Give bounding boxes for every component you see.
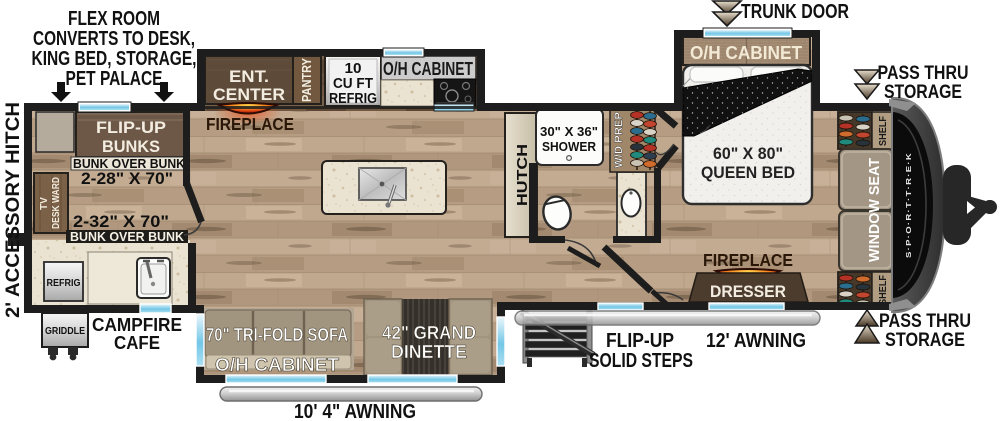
- svg-text:STORAGE: STORAGE: [884, 81, 962, 103]
- svg-text:FLIP-UP: FLIP-UP: [606, 330, 674, 352]
- svg-text:O/H CABINET: O/H CABINET: [690, 43, 802, 63]
- svg-text:DINETTE: DINETTE: [391, 341, 467, 362]
- svg-text:O/H CABINET: O/H CABINET: [383, 58, 474, 79]
- svg-text:REFRIG: REFRIG: [47, 277, 81, 289]
- svg-text:FLIP-UP: FLIP-UP: [96, 119, 166, 137]
- svg-text:2-32" X 70": 2-32" X 70": [73, 212, 169, 231]
- svg-text:KING BED, STORAGE,: KING BED, STORAGE,: [32, 48, 197, 70]
- svg-text:CU FT: CU FT: [333, 76, 373, 92]
- svg-text:DRESSER: DRESSER: [710, 283, 786, 301]
- svg-text:2-28" X 70": 2-28" X 70": [81, 169, 173, 188]
- svg-text:S·P·O·R·T·T·R·E·K: S·P·O·R·T·T·R·E·K: [904, 152, 913, 258]
- svg-text:2' ACCESSORY HITCH: 2' ACCESSORY HITCH: [3, 102, 24, 318]
- svg-text:SHELF: SHELF: [877, 115, 889, 146]
- svg-text:PANTRY: PANTRY: [300, 57, 314, 102]
- svg-text:30" X 36": 30" X 36": [540, 124, 598, 139]
- svg-text:WINDOW SEAT: WINDOW SEAT: [866, 158, 883, 262]
- svg-text:FLEX ROOM: FLEX ROOM: [68, 8, 160, 30]
- svg-text:PET PALACE: PET PALACE: [66, 68, 163, 90]
- svg-text:HUTCH: HUTCH: [514, 144, 531, 206]
- svg-text:10' 4" AWNING: 10' 4" AWNING: [294, 401, 416, 421]
- svg-text:BUNKS: BUNKS: [102, 138, 160, 156]
- svg-text:BUNK OVER BUNK: BUNK OVER BUNK: [70, 230, 184, 244]
- svg-text:GRIDDLE: GRIDDLE: [45, 325, 85, 337]
- svg-text:QUEEN BED: QUEEN BED: [701, 163, 795, 182]
- svg-text:STORAGE: STORAGE: [885, 329, 965, 351]
- svg-text:42" GRAND: 42" GRAND: [382, 322, 476, 343]
- svg-text:SOLID STEPS: SOLID STEPS: [589, 350, 693, 372]
- svg-text:O/H CABINET: O/H CABINET: [215, 354, 340, 375]
- svg-text:SHELF: SHELF: [877, 274, 889, 305]
- svg-text:CONVERTS TO DESK,: CONVERTS TO DESK,: [33, 28, 195, 50]
- svg-text:FIREPLACE: FIREPLACE: [206, 114, 294, 134]
- svg-text:70" TRI-FOLD SOFA: 70" TRI-FOLD SOFA: [206, 324, 348, 345]
- svg-text:FIREPLACE: FIREPLACE: [703, 250, 793, 270]
- svg-text:SHOWER: SHOWER: [542, 139, 597, 154]
- svg-text:ENT.: ENT.: [229, 67, 269, 86]
- svg-text:10: 10: [345, 61, 362, 77]
- svg-text:CENTER: CENTER: [213, 85, 285, 104]
- svg-text:12' AWNING: 12' AWNING: [706, 330, 806, 352]
- svg-text:W/D PREP: W/D PREP: [613, 112, 625, 168]
- svg-text:DESK WARD: DESK WARD: [51, 177, 62, 229]
- svg-text:CAFE: CAFE: [114, 332, 160, 353]
- svg-text:REFRIG: REFRIG: [329, 91, 377, 107]
- svg-text:TRUNK DOOR: TRUNK DOOR: [741, 1, 849, 23]
- svg-text:60" X 80": 60" X 80": [713, 144, 783, 163]
- svg-text:TV: TV: [39, 197, 50, 210]
